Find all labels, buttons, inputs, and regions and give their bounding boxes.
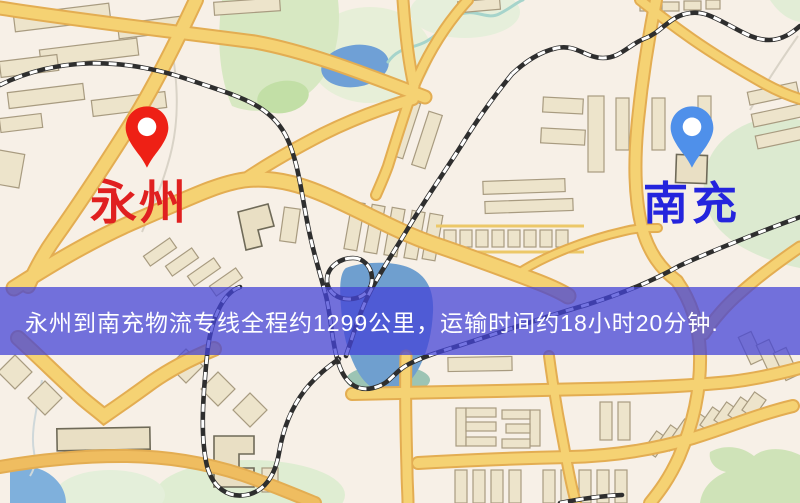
destination-pin-shape — [671, 106, 714, 167]
destination-pin-hole — [683, 118, 702, 137]
map-background[interactable] — [0, 0, 800, 503]
origin-pin-shape — [126, 106, 169, 167]
route-info-text: 永州到南充物流专线全程约1299公里，运输时间约18小时20分钟. — [0, 304, 719, 338]
destination-label: 南充 — [643, 181, 741, 226]
route-info-banner: 永州到南充物流专线全程约1299公里，运输时间约18小时20分钟. — [0, 287, 800, 355]
origin-pin-icon[interactable] — [121, 104, 173, 170]
origin-pin-hole — [138, 118, 157, 137]
origin-label: 永州 — [90, 180, 188, 227]
destination-pin-icon[interactable] — [666, 104, 718, 170]
logistics-route-map: 永州 南充 永州到南充物流专线全程约1299公里，运输时间约18小时20分钟. — [0, 0, 800, 503]
